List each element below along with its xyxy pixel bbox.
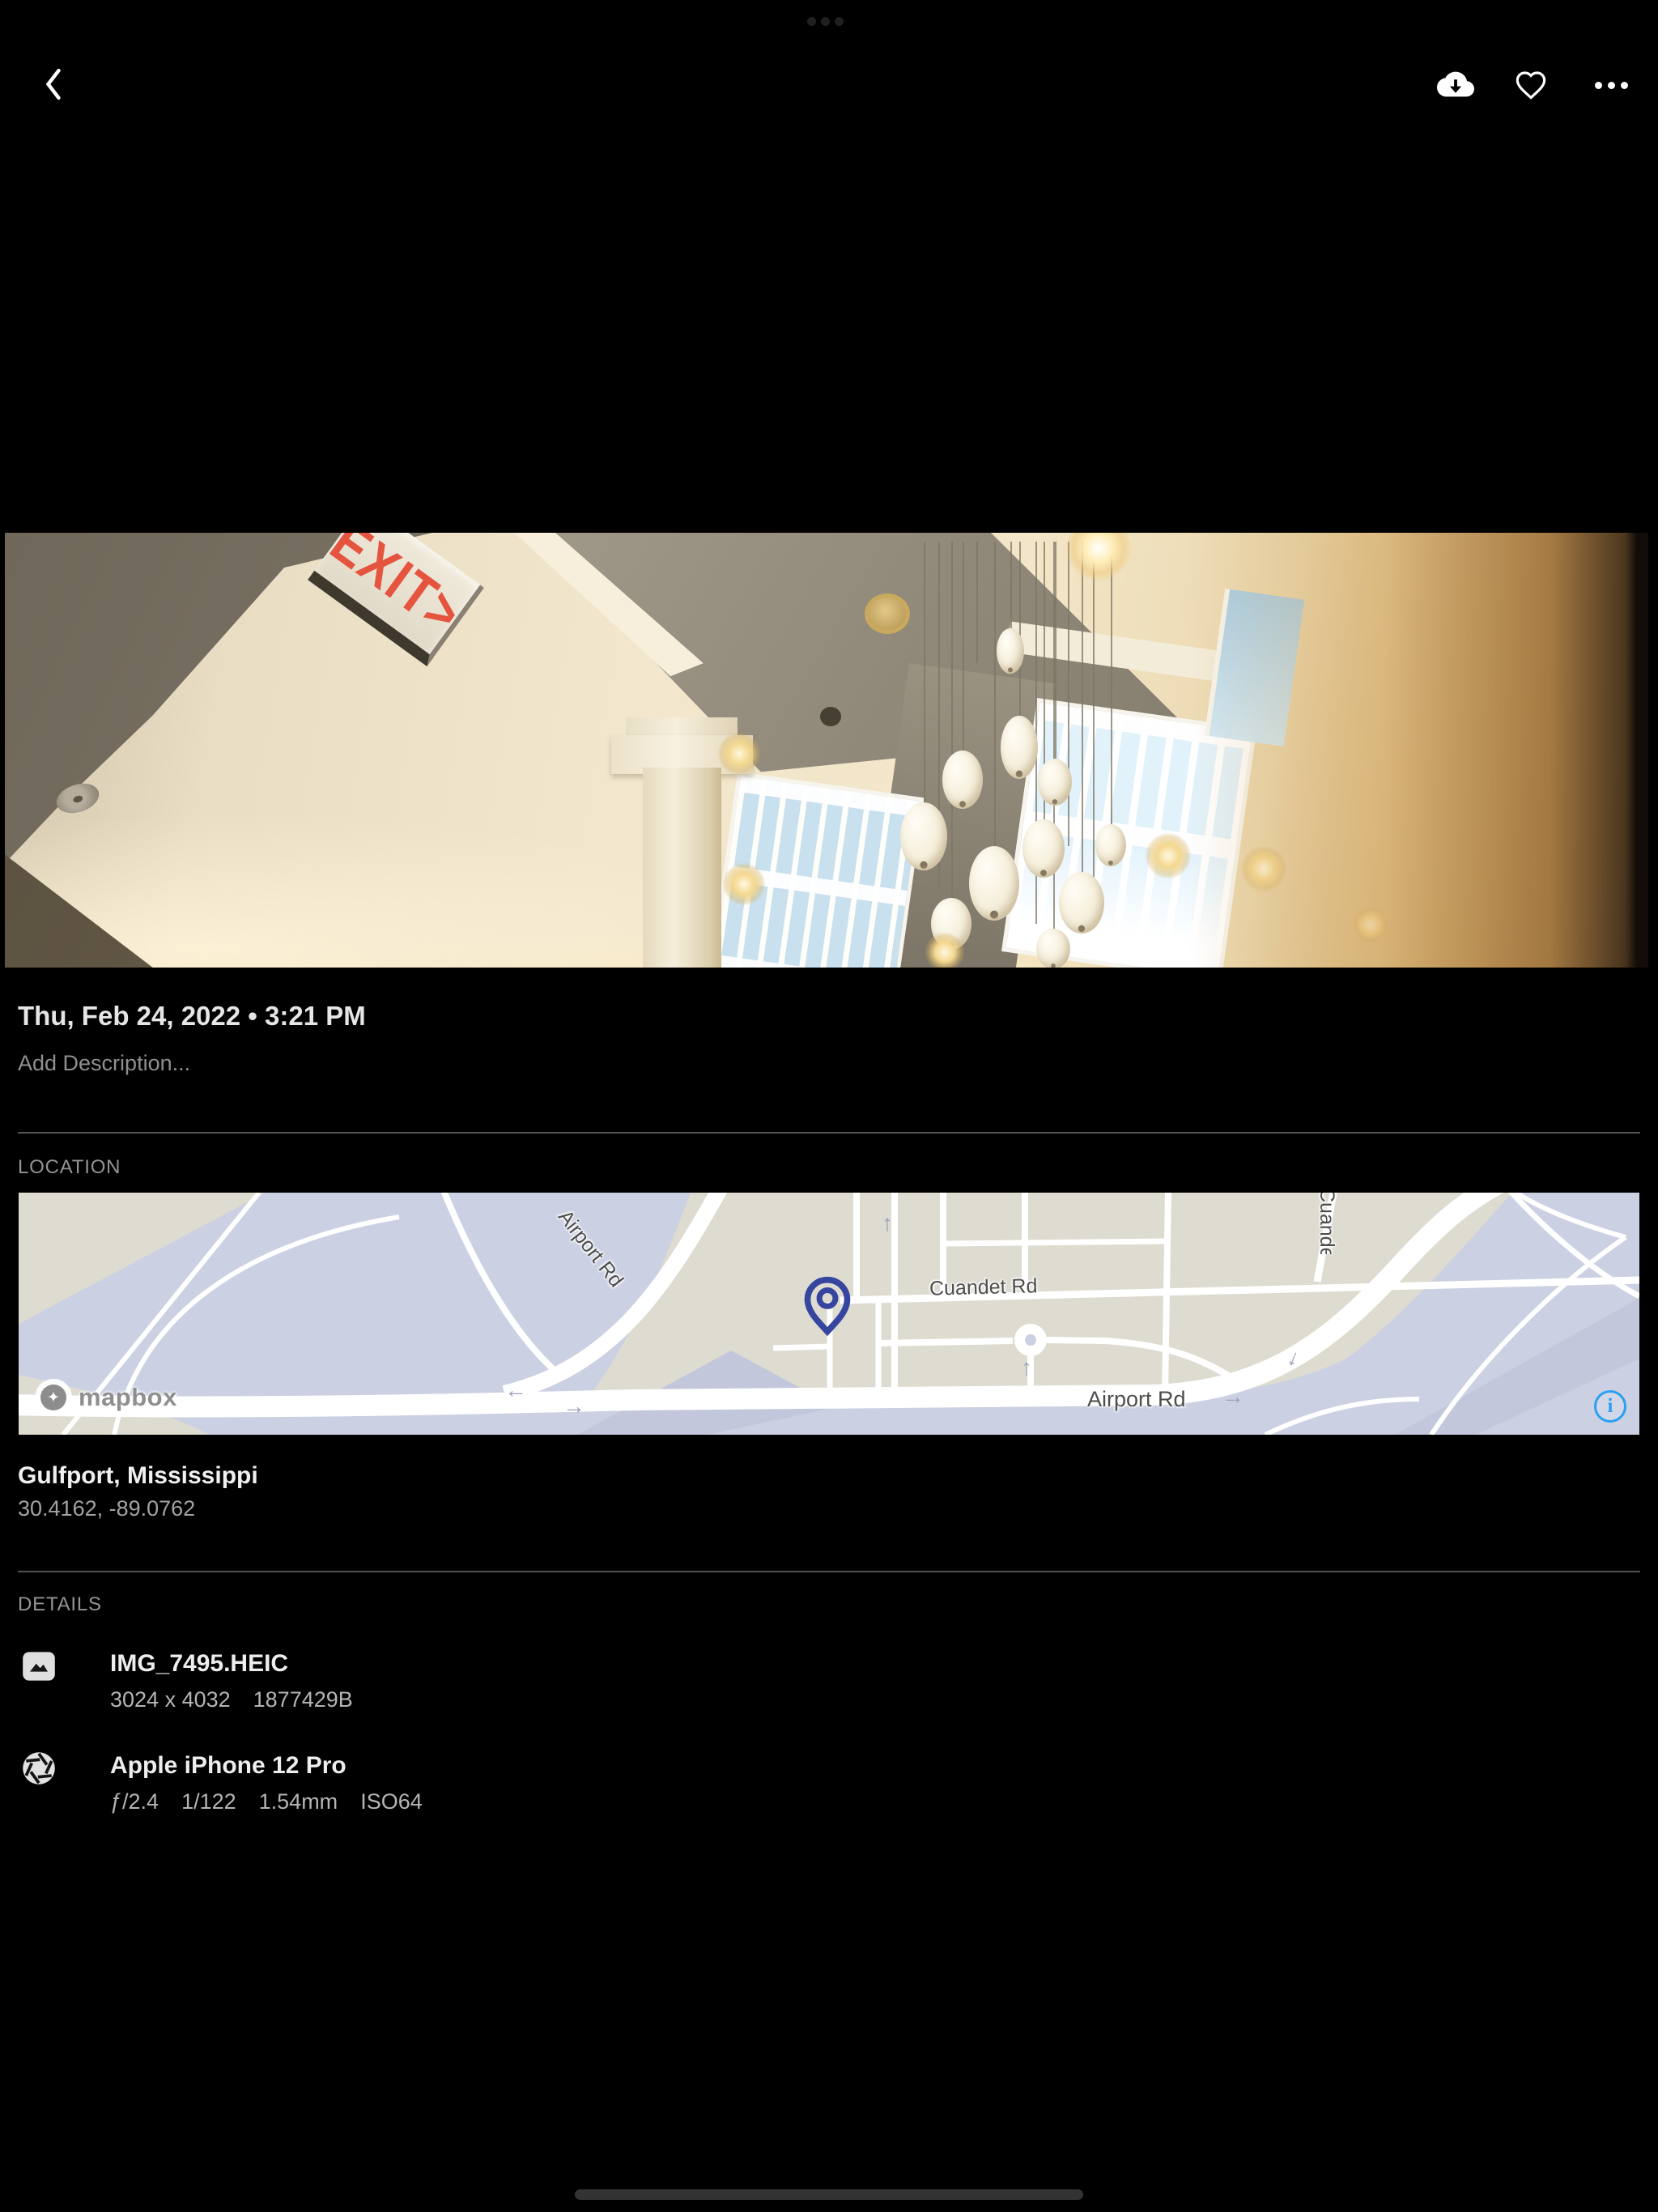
heart-icon [1515, 70, 1547, 100]
road-arrow-icon: → [563, 1393, 585, 1419]
photo-datetime: Thu, Feb 24, 2022 • 3:21 PM [18, 1001, 366, 1032]
road-label-cuandet-clipped-wrap: Cuandet Rd [1311, 1193, 1348, 1254]
pendant-lamp [1036, 929, 1070, 968]
cloud-download-icon [1437, 68, 1474, 100]
back-button[interactable] [36, 65, 71, 104]
road-label-airport-horiz: Airport Rd [1087, 1387, 1186, 1412]
location-place: Gulfport, Mississippi [18, 1462, 258, 1490]
camera-aperture: ƒ/2.4 [110, 1789, 159, 1814]
lamp-wire [1068, 542, 1069, 846]
mapbox-logo-text: mapbox [79, 1383, 177, 1412]
chevron-left-icon [43, 66, 64, 102]
file-row-icon-wrap [21, 1648, 57, 1684]
pendant-lamp [997, 628, 1024, 674]
road-arrow-icon: → [1222, 1384, 1244, 1410]
description-input[interactable]: Add Description... [18, 1051, 190, 1076]
camera-aperture-icon [21, 1750, 57, 1786]
camera-shutter: 1/122 [181, 1789, 236, 1814]
map-pin-icon [799, 1274, 856, 1355]
lamp-wire [1010, 542, 1012, 628]
photo-image[interactable]: EXIT> [5, 533, 1648, 968]
favorite-button[interactable] [1512, 66, 1550, 104]
recessed-light [1353, 907, 1388, 942]
road-label-cuandet-clipped: Cuandet Rd [1315, 1193, 1338, 1254]
location-section-label: LOCATION [18, 1156, 121, 1179]
recessed-light [1241, 846, 1286, 891]
file-name: IMG_7495.HEIC [110, 1650, 288, 1678]
mapbox-logo-icon: ✦ [35, 1379, 72, 1416]
camera-focal: 1.54mm [259, 1789, 338, 1814]
camera-row-icon-wrap [21, 1750, 57, 1786]
file-size: 1877429B [253, 1687, 353, 1712]
lamp-wire [1019, 542, 1021, 716]
pendant-lamp [1001, 716, 1038, 779]
recessed-light [718, 733, 760, 775]
recessed-light [1146, 833, 1191, 878]
road-arrow-icon: ↑ [1021, 1355, 1032, 1380]
lamp-wire [1093, 542, 1095, 907]
camera-iso: ISO64 [360, 1789, 423, 1814]
details-section-label: DETAILS [18, 1593, 102, 1616]
pendant-lamp [1095, 824, 1126, 866]
lamp-wire [963, 542, 964, 751]
more-options-button[interactable] [1588, 73, 1634, 97]
lamp-wire [976, 542, 978, 663]
pendant-lamp [900, 802, 947, 870]
pendant-lamp [942, 751, 983, 809]
home-indicator[interactable] [575, 2189, 1083, 2200]
pendant-lamp [1038, 759, 1072, 806]
image-file-icon [21, 1648, 57, 1684]
file-dimensions: 3024 x 4032 [110, 1687, 231, 1712]
camera-meta: ƒ/2.41/1221.54mmISO64 [110, 1789, 445, 1814]
divider [18, 1132, 1640, 1134]
lamp-wire [994, 542, 996, 846]
map-info-button[interactable]: i [1594, 1390, 1626, 1423]
location-map[interactable]: Airport Rd Cuandet Rd Airport Rd Airport… [19, 1193, 1639, 1435]
photo-detail-screen: EXIT> [0, 0, 1658, 2212]
location-coordinates: 30.4162, -89.0762 [18, 1496, 195, 1521]
road-arrow-icon: ← [504, 1377, 527, 1403]
road-label-cuandet: Cuandet Rd [929, 1274, 1038, 1300]
photo-column [643, 768, 721, 968]
mapbox-attribution[interactable]: ✦ mapbox [35, 1379, 177, 1416]
lamp-wire [1055, 542, 1056, 759]
multitask-indicator-icon[interactable] [807, 17, 844, 26]
lamp-wire [1082, 542, 1083, 872]
divider [18, 1571, 1640, 1572]
recessed-light [723, 863, 765, 905]
road-arrow-icon: ↑ [882, 1210, 893, 1236]
recessed-light [925, 933, 964, 968]
camera-name: Apple iPhone 12 Pro [110, 1752, 346, 1780]
pendant-lamp [1059, 872, 1104, 934]
photo-ceiling-speaker [820, 707, 841, 726]
lamp-wire [951, 542, 953, 898]
pendant-lamp [969, 846, 1019, 921]
pendant-lamp [1022, 819, 1065, 878]
file-meta: 3024 x 40321877429B [110, 1687, 376, 1712]
info-icon: i [1608, 1395, 1613, 1418]
download-button[interactable] [1435, 65, 1477, 104]
ellipsis-icon [1595, 82, 1628, 89]
lamp-wire [1111, 542, 1112, 824]
photo-ceiling-medallion [865, 593, 910, 634]
lamp-wire [924, 542, 925, 802]
